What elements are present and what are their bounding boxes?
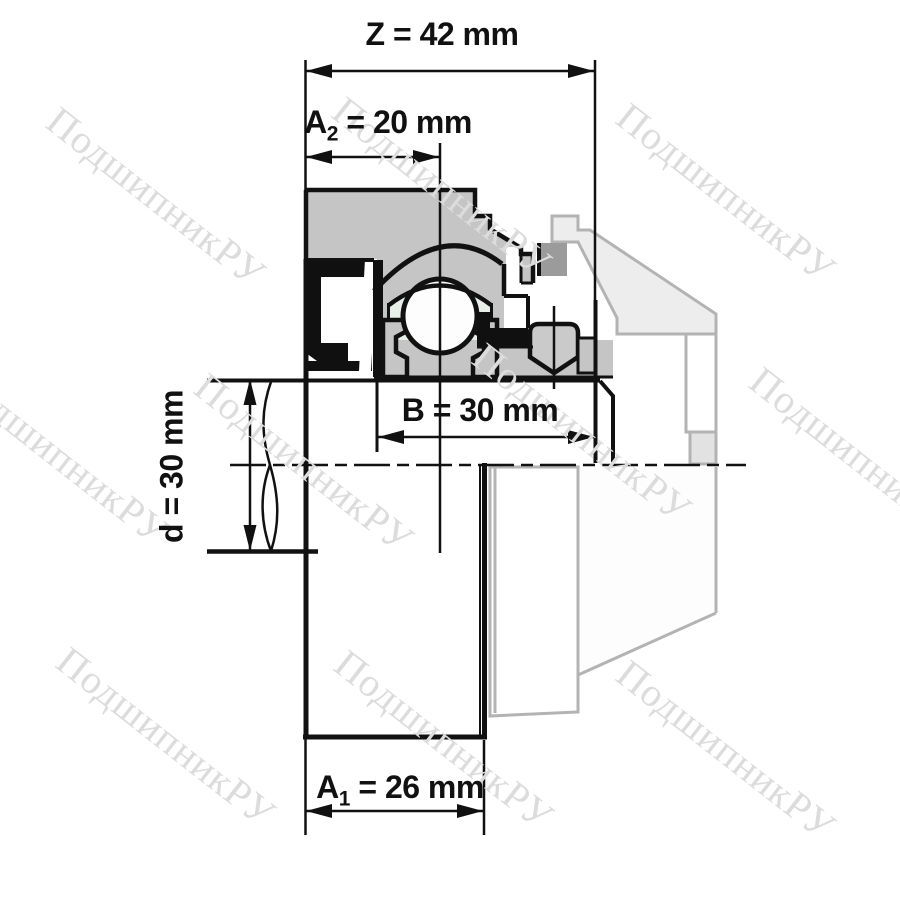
dim-label-d: d = 30 mm	[154, 372, 191, 562]
dim-label-a1: A1 = 26 mm	[300, 769, 500, 806]
phantom-flange-plate-hub	[690, 432, 716, 464]
shaft-end-chamfer	[600, 381, 613, 462]
phantom-cylinder-lower	[490, 467, 578, 716]
dim-label-z: Z = 42 mm	[342, 16, 542, 53]
dim-A2	[306, 150, 439, 164]
dimension-lines	[244, 60, 596, 835]
dim-label-b: B = 30 mm	[380, 392, 580, 429]
phantom-upper-arm	[552, 216, 716, 334]
bearing-drawing-page: Z = 42 mm A2 = 20 mm B = 30 mm A1 = 26 m…	[0, 0, 900, 900]
dim-B	[378, 430, 594, 444]
dim-A1	[306, 804, 483, 818]
inner-ring-screw-land	[578, 338, 596, 373]
dim-Z	[306, 64, 594, 78]
phantom-overlap-block	[540, 243, 567, 276]
dim-label-a2: A2 = 20 mm	[288, 104, 488, 141]
phantom-flange-plate	[686, 334, 716, 432]
